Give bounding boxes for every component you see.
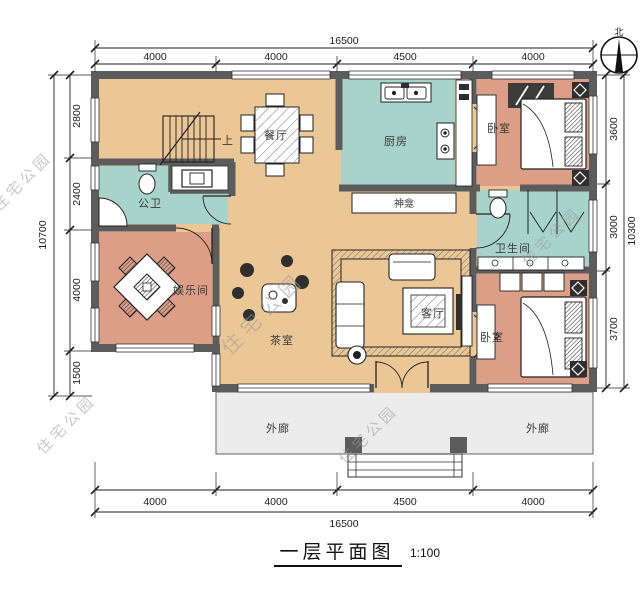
- pillow: [565, 137, 582, 166]
- dim-bottom-total: 16500: [329, 518, 358, 530]
- dim-bottom-2: 4000: [264, 496, 288, 508]
- label-porch-left: 外廊: [266, 421, 290, 435]
- window: [212, 306, 220, 336]
- faucet: [401, 83, 409, 88]
- dim-left-total: 10700: [37, 220, 49, 249]
- toilet: [490, 198, 506, 218]
- label-tea-room: 茶室: [270, 333, 294, 347]
- dim-bottom-4: 4000: [521, 496, 545, 508]
- drawing-scale: 1:100: [410, 546, 440, 560]
- armchair: [389, 254, 435, 280]
- label-living-room: 客厅: [421, 306, 445, 320]
- watermark-text: 住宅公园: [34, 392, 100, 458]
- dim-left-2: 2400: [71, 182, 83, 206]
- dim-left-3: 4000: [71, 278, 83, 302]
- watermark-text: 住宅公园: [0, 149, 56, 215]
- dim-top-2: 4000: [264, 51, 288, 63]
- compass-north-label: 北: [614, 27, 623, 37]
- window: [492, 71, 574, 79]
- label-dining: 餐厅: [264, 128, 288, 142]
- window: [488, 384, 572, 392]
- window: [91, 98, 99, 142]
- tv-console: [462, 276, 472, 346]
- floor-plan-drawing: 餐厅 厨房 卧室 神龛 公卫 娱乐间 茶室 客厅 卫生间 卧室 外廊 外廊 上 …: [0, 0, 640, 598]
- floor-plan-page: 餐厅 厨房 卧室 神龛 公卫 娱乐间 茶室 客厅 卫生间 卧室 外廊 外廊 上 …: [0, 0, 640, 598]
- toilet: [139, 174, 155, 194]
- dim-right-1: 3600: [608, 117, 620, 141]
- label-bedroom2: 卧室: [480, 330, 504, 344]
- window: [589, 298, 597, 368]
- dim-right-3: 3700: [608, 317, 620, 341]
- porch-column: [450, 437, 467, 453]
- window: [232, 71, 330, 79]
- toilet-tank: [139, 164, 156, 171]
- label-entertainment: 娱乐间: [173, 283, 209, 297]
- dim-left-4: 1500: [71, 361, 83, 385]
- dim-top-4: 4000: [521, 51, 545, 63]
- label-bedroom1: 卧室: [487, 121, 511, 135]
- dim-bottom-1: 4000: [143, 496, 167, 508]
- mahjong-table: [114, 254, 180, 320]
- label-stairs-up: 上: [222, 134, 234, 147]
- dim-top-1: 4000: [143, 51, 167, 63]
- stove: [437, 123, 454, 159]
- window: [116, 344, 194, 352]
- window: [238, 384, 370, 392]
- dim-top-3: 4500: [393, 51, 417, 63]
- dim-right-2: 3000: [608, 215, 620, 239]
- toilet-tank: [489, 190, 507, 197]
- page-title: 一层平面图: [279, 542, 394, 563]
- label-public-bath: 公卫: [138, 198, 162, 210]
- pillow: [565, 302, 582, 333]
- compass-icon: 北: [601, 27, 637, 73]
- window: [91, 308, 99, 342]
- label-kitchen: 厨房: [384, 135, 408, 148]
- pillow: [565, 103, 582, 132]
- window: [91, 166, 99, 190]
- tv: [456, 294, 462, 330]
- entry-steps: [348, 454, 462, 477]
- label-porch-right: 外廊: [526, 421, 550, 435]
- title-block: 一层平面图 1:100: [274, 542, 440, 566]
- dim-left-1: 2800: [71, 104, 83, 128]
- window: [349, 71, 461, 79]
- wardrobe: [544, 273, 564, 291]
- dim-bottom-3: 4500: [393, 496, 417, 508]
- window: [212, 354, 220, 386]
- understair-appliance: [172, 166, 228, 190]
- sofa: [336, 282, 364, 348]
- window: [589, 200, 597, 252]
- label-shrine: 神龛: [394, 197, 414, 210]
- dim-right-total: 10300: [626, 216, 638, 245]
- window: [589, 96, 597, 154]
- dim-top-total: 16500: [329, 35, 358, 47]
- window: [91, 243, 99, 281]
